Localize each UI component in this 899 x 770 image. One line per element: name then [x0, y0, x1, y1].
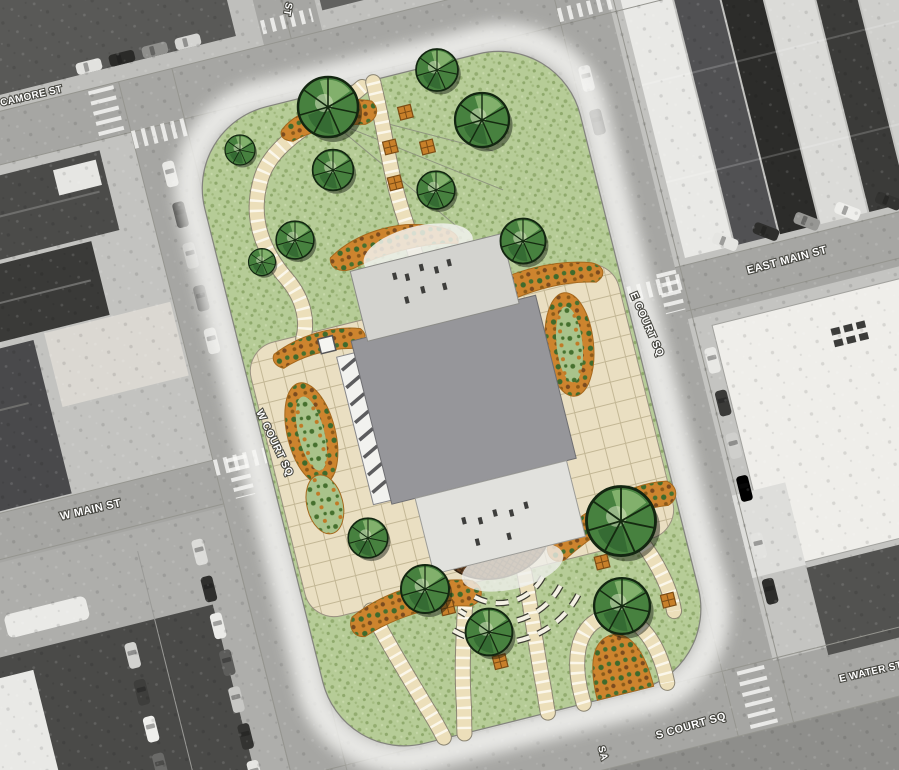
site-plan-map: CAMORE ST ST EAST MAIN ST E COURT SQ W C…	[0, 0, 899, 770]
square-planter	[318, 336, 336, 354]
aerial-photo-background	[0, 0, 899, 770]
aerial-plan-svg: CAMORE ST ST EAST MAIN ST E COURT SQ W C…	[0, 0, 899, 770]
street-label-north-st: ST	[281, 1, 294, 16]
